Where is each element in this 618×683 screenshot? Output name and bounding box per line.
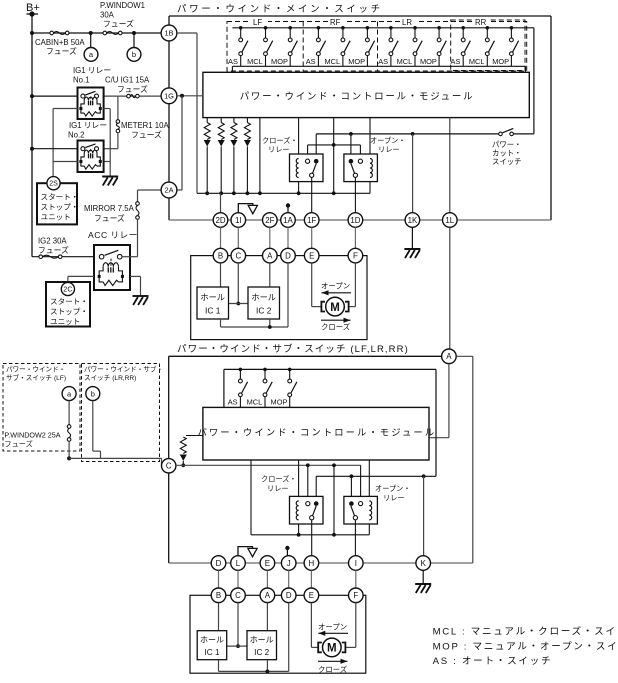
svg-text:フューズ: フューズ	[38, 245, 69, 255]
svg-text:フューズ: フューズ	[46, 46, 77, 56]
svg-text:フューズ: フューズ	[94, 213, 125, 223]
svg-text:b: b	[91, 389, 95, 398]
svg-text:C: C	[235, 251, 241, 260]
svg-text:AS: AS	[306, 57, 316, 66]
svg-text:LR: LR	[402, 18, 412, 27]
svg-text:AS: AS	[378, 57, 388, 66]
svg-text:ユニット: ユニット	[50, 317, 80, 326]
svg-text:AS : オート・スイッチ: AS : オート・スイッチ	[433, 656, 553, 667]
svg-text:IG2 30A: IG2 30A	[38, 237, 67, 246]
svg-text:1G: 1G	[164, 91, 174, 100]
svg-text:I: I	[355, 559, 357, 568]
svg-text:b: b	[132, 50, 136, 59]
svg-text:MOP: MOP	[492, 57, 509, 66]
svg-text:スイッチ: スイッチ	[492, 157, 522, 166]
svg-text:IC 1: IC 1	[204, 648, 219, 657]
svg-text:オープン: オープン	[321, 282, 350, 291]
svg-text:E: E	[265, 559, 270, 568]
svg-text:ホール: ホール	[200, 636, 224, 645]
svg-text:M: M	[327, 643, 337, 655]
svg-text:No.2: No.2	[68, 131, 84, 140]
svg-text:AS: AS	[228, 398, 238, 407]
svg-text:クローズ・: クローズ・	[261, 475, 297, 484]
svg-text:E: E	[309, 251, 314, 260]
svg-text:F: F	[353, 591, 358, 600]
svg-text:クローズ: クローズ	[318, 665, 348, 674]
svg-text:1D: 1D	[350, 216, 360, 225]
svg-text:パワー・ウインド・メイン・スイッチ: パワー・ウインド・メイン・スイッチ	[177, 4, 383, 15]
svg-text:D: D	[216, 559, 222, 568]
svg-text:L: L	[236, 559, 241, 568]
svg-text:B: B	[218, 251, 223, 260]
svg-text:C: C	[235, 591, 241, 600]
svg-text:H: H	[309, 559, 315, 568]
svg-text:オープン・: オープン・	[370, 136, 406, 145]
svg-text:1L: 1L	[445, 216, 454, 225]
svg-text:P.WINDOW1: P.WINDOW1	[100, 1, 145, 10]
svg-text:MOP: MOP	[271, 57, 288, 66]
svg-text:M: M	[330, 302, 340, 314]
svg-text:2D: 2D	[215, 216, 225, 225]
svg-text:1F: 1F	[307, 216, 316, 225]
svg-text:1A: 1A	[283, 216, 293, 225]
svg-text:MOP: MOP	[271, 398, 288, 407]
svg-text:RF: RF	[330, 18, 341, 27]
svg-text:サブ・スイッチ (LF): サブ・スイッチ (LF)	[6, 373, 66, 382]
svg-text:クローズ・: クローズ・	[262, 136, 298, 145]
svg-text:METER1 10A: METER1 10A	[121, 121, 169, 130]
svg-text:1I: 1I	[235, 216, 242, 225]
svg-text:IC 2: IC 2	[254, 648, 269, 657]
svg-text:MCL : マニュアル・クローズ・スイッチ: MCL : マニュアル・クローズ・スイッチ	[433, 626, 618, 638]
svg-text:B: B	[216, 591, 221, 600]
svg-text:30A: 30A	[100, 11, 115, 20]
svg-text:2C: 2C	[63, 287, 72, 294]
svg-text:E: E	[309, 591, 314, 600]
svg-text:フューズ: フューズ	[117, 84, 148, 94]
svg-text:IC 1: IC 1	[205, 306, 221, 316]
svg-text:パワー・ウインド・コントロール・モジュール: パワー・ウインド・コントロール・モジュール	[197, 428, 436, 438]
svg-text:2F: 2F	[265, 216, 274, 225]
svg-text:MCL: MCL	[397, 57, 413, 66]
svg-text:フューズ: フューズ	[131, 130, 162, 140]
svg-text:AS: AS	[451, 57, 461, 66]
svg-text:No.1: No.1	[73, 76, 89, 85]
svg-text:スタート・: スタート・	[41, 193, 79, 202]
svg-text:パワー・ウインド・サブ・スイッチ (LF,LR,RR): パワー・ウインド・サブ・スイッチ (LF,LR,RR)	[177, 343, 409, 355]
svg-text:C/U IG1 15A: C/U IG1 15A	[105, 76, 150, 85]
svg-text:1B: 1B	[164, 29, 173, 38]
svg-text:パワー・ウインド・サブ・: パワー・ウインド・サブ・	[84, 365, 163, 374]
svg-text:スタート・: スタート・	[50, 297, 88, 306]
svg-text:LF: LF	[253, 18, 262, 27]
svg-text:K: K	[421, 559, 427, 568]
svg-text:A: A	[265, 591, 271, 600]
svg-text:パワー・ウインド・: パワー・ウインド・	[6, 366, 65, 374]
svg-text:リレー: リレー	[383, 494, 405, 503]
svg-text:MOP : マニュアル・オープン・スイッチ: MOP : マニュアル・オープン・スイッチ	[433, 642, 618, 653]
svg-text:オープン: オープン	[318, 623, 347, 632]
svg-text:RR: RR	[475, 18, 487, 27]
svg-text:F: F	[353, 251, 358, 260]
svg-text:IC 2: IC 2	[256, 306, 272, 316]
svg-text:リレー: リレー	[268, 145, 290, 154]
svg-text:MCL: MCL	[247, 57, 263, 66]
svg-text:MCL: MCL	[247, 398, 263, 407]
svg-text:ホール: ホール	[251, 293, 276, 302]
svg-text:J: J	[287, 559, 291, 568]
svg-text:MOP: MOP	[420, 57, 437, 66]
svg-text:C: C	[166, 462, 172, 471]
svg-text:ユニット: ユニット	[41, 213, 71, 222]
svg-text:ホール: ホール	[200, 293, 225, 302]
svg-text:2A: 2A	[164, 186, 173, 195]
svg-text:MCL: MCL	[469, 57, 485, 66]
svg-text:スイッチ (LR,RR): スイッチ (LR,RR)	[84, 374, 136, 382]
svg-text:D: D	[285, 251, 291, 260]
svg-text:A: A	[446, 352, 452, 361]
svg-text:ストップ・: ストップ・	[50, 307, 88, 316]
svg-text:P.WINDOW2 25A: P.WINDOW2 25A	[4, 431, 60, 440]
svg-text:ホール: ホール	[250, 636, 274, 645]
svg-text:パワー・ウインド・コントロール・モジュール: パワー・ウインド・コントロール・モジュール	[240, 92, 475, 103]
svg-text:D: D	[286, 591, 292, 600]
svg-text:フューズ: フューズ	[4, 440, 32, 449]
svg-text:リレー: リレー	[378, 145, 400, 154]
svg-text:MCL: MCL	[324, 57, 340, 66]
svg-text:AS: AS	[228, 57, 238, 66]
svg-text:ACC リレー: ACC リレー	[88, 230, 138, 240]
svg-text:A: A	[267, 251, 273, 260]
svg-text:MIRROR 7.5A: MIRROR 7.5A	[84, 204, 135, 213]
svg-text:クローズ: クローズ	[321, 323, 351, 332]
svg-text:フューズ: フューズ	[103, 19, 134, 29]
svg-text:オープン・: オープン・	[375, 484, 411, 493]
svg-text:1K: 1K	[408, 216, 418, 225]
svg-text:2S: 2S	[49, 181, 58, 188]
svg-text:CABIN+B 50A: CABIN+B 50A	[35, 38, 85, 47]
svg-text:IG1 リレー: IG1 リレー	[69, 121, 107, 130]
svg-text:MOP: MOP	[348, 57, 365, 66]
svg-text:IG1 リレー: IG1 リレー	[73, 66, 111, 75]
svg-text:ストップ・: ストップ・	[41, 203, 79, 212]
svg-text:リレー: リレー	[267, 484, 289, 493]
